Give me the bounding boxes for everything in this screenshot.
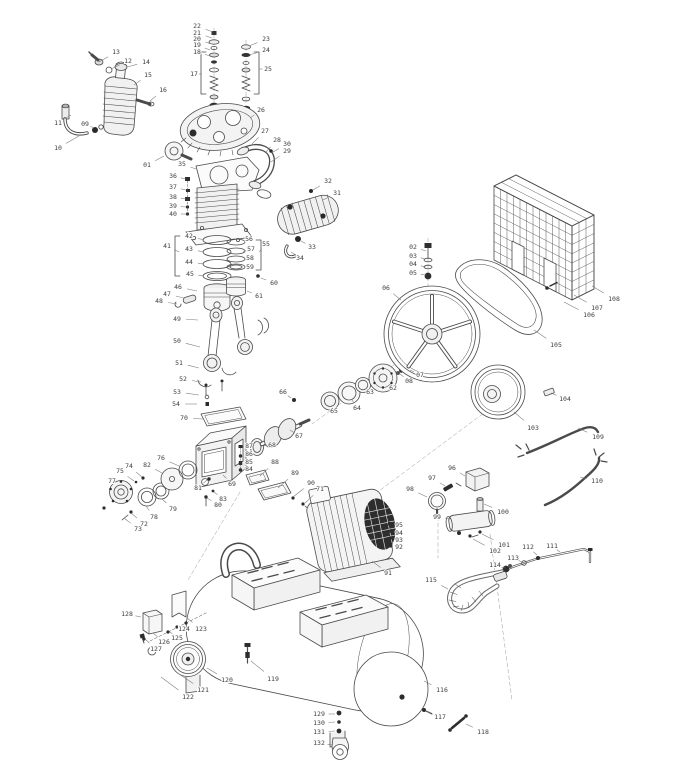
grid-screw	[545, 286, 549, 290]
bracket-17	[201, 52, 206, 94]
exploded-parts-diagram: 0102030405060708091011121314151617181920…	[0, 0, 686, 768]
part-label-39: 39	[169, 202, 177, 210]
bearings-retainers	[321, 364, 410, 410]
part-label-67: 67	[295, 432, 303, 440]
part-label-53: 53	[173, 388, 181, 396]
part-label-55: 55	[262, 240, 270, 248]
part-label-26: 26	[257, 106, 265, 114]
part-label-57: 57	[247, 245, 255, 253]
part-label-108: 108	[608, 295, 620, 303]
bracket-25	[254, 52, 259, 94]
part-label-94: 94	[395, 529, 403, 537]
part-label-82: 82	[143, 461, 151, 469]
part-label-103: 103	[527, 424, 539, 432]
part-label-92: 92	[395, 543, 403, 551]
part-label-32: 32	[324, 177, 332, 185]
drain-plug	[422, 708, 426, 712]
part-label-68: 68	[268, 441, 276, 449]
part-label-70: 70	[180, 414, 188, 422]
part-label-64: 64	[353, 404, 361, 412]
part-label-97: 97	[428, 474, 436, 482]
part-label-119: 119	[267, 675, 279, 683]
part-label-107: 107	[591, 304, 603, 312]
bolt-32	[309, 189, 313, 193]
leader-line-96	[460, 473, 465, 476]
part-label-05: 05	[409, 269, 417, 277]
leader-line-52	[192, 381, 201, 383]
part-label-105: 105	[550, 341, 562, 349]
leader-line-101	[482, 534, 493, 540]
part-label-88: 88	[271, 458, 279, 466]
part-label-09: 09	[81, 120, 89, 128]
leader-line-80	[207, 498, 211, 501]
part-label-73: 73	[134, 525, 142, 533]
pistons	[175, 274, 260, 311]
leader-line-72	[131, 513, 137, 518]
part-label-106: 106	[583, 311, 595, 319]
part-label-83: 83	[219, 495, 227, 503]
part-label-75: 75	[116, 467, 124, 475]
part-label-65: 65	[330, 407, 338, 415]
leader-line-27	[252, 138, 259, 145]
diagram-canvas: 0102030405060708091011121314151617181920…	[0, 0, 686, 768]
part-label-78: 78	[150, 513, 158, 521]
leader-line-98	[418, 493, 427, 497]
part-label-52: 52	[179, 375, 187, 383]
part-label-22: 22	[193, 22, 201, 30]
nut-33	[295, 236, 301, 242]
part-label-50: 50	[173, 337, 181, 345]
part-label-49: 49	[173, 315, 181, 323]
part-label-11: 11	[54, 119, 62, 127]
part-label-38: 38	[169, 193, 177, 201]
woodruff-key	[292, 398, 296, 402]
leader-line-90	[293, 489, 304, 497]
leader-line-46	[187, 289, 197, 291]
part-label-95: 95	[395, 521, 403, 529]
leader-line-60	[261, 278, 266, 280]
part-label-35: 35	[178, 160, 186, 168]
bolt-60	[256, 274, 260, 278]
leader-line-115	[441, 585, 448, 589]
bracket-41	[175, 236, 180, 276]
leader-line-50	[186, 343, 200, 347]
part-label-07: 07	[416, 371, 424, 379]
part-label-127: 127	[150, 645, 162, 653]
leader-line-23	[249, 43, 258, 47]
leader-line-30	[273, 149, 279, 152]
part-label-23: 23	[262, 35, 270, 43]
part-label-40: 40	[169, 210, 177, 218]
part-label-27: 27	[261, 127, 269, 135]
leader-line-61	[247, 291, 252, 293]
part-label-81: 81	[194, 484, 202, 492]
crankcase	[196, 426, 246, 488]
part-label-118: 118	[477, 728, 489, 736]
part-label-122: 122	[182, 693, 194, 701]
leader-line-100	[484, 504, 492, 507]
part-label-74: 74	[125, 462, 133, 470]
part-label-18: 18	[193, 48, 201, 56]
leader-line-76	[169, 462, 179, 466]
leader-line-66	[288, 396, 291, 398]
leader-line-06	[393, 294, 401, 300]
leader-line-83	[214, 492, 218, 495]
part-label-46: 46	[174, 283, 182, 291]
part-label-124: 124	[178, 625, 190, 633]
part-label-100: 100	[497, 508, 509, 516]
part-label-121: 121	[197, 686, 209, 694]
leader-line-105	[534, 330, 546, 338]
part-label-76: 76	[157, 454, 165, 462]
leader-line-78	[146, 506, 149, 510]
leader-line-73	[124, 518, 131, 523]
part-label-37: 37	[169, 183, 177, 191]
part-label-117: 117	[434, 713, 446, 721]
leader-line-104	[551, 393, 557, 395]
part-label-30: 30	[283, 140, 291, 148]
part-label-51: 51	[175, 359, 183, 367]
leader-line-19	[205, 48, 210, 50]
fitting-nut	[106, 67, 112, 73]
cooling-grid-panel	[494, 175, 594, 300]
part-label-120: 120	[221, 676, 233, 684]
part-label-44: 44	[185, 258, 193, 266]
part-label-03: 03	[409, 252, 417, 260]
part-label-47: 47	[163, 290, 171, 298]
flex-hose	[449, 571, 508, 611]
leader-line-102	[473, 539, 485, 545]
leader-line-47	[176, 296, 184, 298]
part-label-90: 90	[307, 479, 315, 487]
part-label-125: 125	[171, 634, 183, 642]
leader-line-74	[136, 472, 142, 477]
leader-line-08	[400, 374, 404, 377]
leader-line-70	[193, 419, 203, 420]
part-label-111: 111	[546, 542, 558, 550]
part-label-115: 115	[425, 576, 437, 584]
leader-line-01	[155, 156, 164, 161]
leader-line-10	[66, 136, 79, 143]
leader-line-35	[190, 167, 196, 169]
part-label-66: 66	[279, 388, 287, 396]
part-label-29: 29	[283, 147, 291, 155]
leader-line-97	[440, 483, 445, 486]
part-label-06: 06	[382, 284, 390, 292]
part-label-21: 21	[193, 29, 201, 37]
base-gasket	[201, 407, 246, 426]
leader-line-75	[128, 476, 135, 481]
part-label-86: 86	[245, 450, 253, 458]
part-label-69: 69	[228, 480, 236, 488]
part-label-56: 56	[245, 235, 253, 243]
leader-line-127	[145, 639, 149, 643]
leader-line-126	[153, 633, 157, 637]
bracket-55	[256, 240, 261, 270]
part-label-31: 31	[333, 189, 341, 197]
leader-line-09	[90, 126, 94, 128]
part-label-130: 130	[313, 719, 325, 727]
leader-line-16	[150, 96, 156, 101]
part-label-08: 08	[405, 377, 413, 385]
part-label-123: 123	[195, 625, 207, 633]
leader-line-82	[155, 469, 162, 473]
part-label-102: 102	[489, 547, 501, 555]
leader-line-49	[186, 319, 198, 320]
part-label-43: 43	[185, 245, 193, 253]
leader-line-106	[564, 302, 579, 310]
part-label-63: 63	[366, 388, 374, 396]
part-label-13: 13	[112, 48, 120, 56]
part-label-10: 10	[54, 144, 62, 152]
leader-line-22	[206, 29, 213, 32]
leader-line-112	[533, 552, 537, 555]
part-label-79: 79	[169, 505, 177, 513]
part-label-71: 71	[316, 485, 324, 493]
part-label-41: 41	[163, 242, 171, 250]
part-label-113: 113	[507, 554, 519, 562]
part-label-61: 61	[255, 292, 263, 300]
part-label-77: 77	[108, 477, 116, 485]
part-label-34: 34	[296, 254, 304, 262]
part-label-112: 112	[522, 543, 534, 551]
oil-cooler-assembly	[62, 52, 154, 135]
part-label-59: 59	[246, 263, 254, 271]
leader-line-33	[301, 241, 305, 243]
part-label-62: 62	[389, 384, 397, 392]
part-label-25: 25	[264, 65, 272, 73]
leader-line-118	[466, 724, 473, 727]
leader-line-21	[206, 36, 212, 38]
leader-line-128	[135, 616, 141, 617]
leader-line-51	[188, 365, 199, 368]
part-label-54: 54	[172, 400, 180, 408]
part-label-48: 48	[155, 297, 163, 305]
part-label-96: 96	[448, 464, 456, 472]
part-label-24: 24	[262, 46, 270, 54]
leader-line-113	[518, 560, 522, 562]
leader-line-02	[421, 249, 426, 251]
crankshaft	[251, 398, 310, 456]
part-label-15: 15	[144, 71, 152, 79]
part-label-45: 45	[186, 270, 194, 278]
tank-end-dome	[354, 652, 428, 726]
leader-line-79	[162, 499, 166, 503]
part-label-17: 17	[190, 70, 198, 78]
leader-line-103	[514, 412, 524, 420]
part-label-110: 110	[591, 477, 603, 485]
part-label-33: 33	[308, 243, 316, 251]
part-label-128: 128	[121, 610, 133, 618]
leader-line-24	[249, 53, 257, 55]
fitting-118	[452, 718, 464, 728]
part-label-132: 132	[313, 739, 325, 747]
part-label-131: 131	[313, 728, 325, 736]
leader-line-122	[161, 677, 179, 690]
part-label-42: 42	[185, 232, 193, 240]
part-label-85: 85	[245, 458, 253, 466]
part-label-116: 116	[436, 686, 448, 694]
part-label-109: 109	[592, 433, 604, 441]
leader-line-37	[181, 189, 186, 190]
part-label-14: 14	[142, 58, 150, 66]
leader-line-32	[313, 186, 320, 190]
part-label-16: 16	[159, 86, 167, 94]
part-label-04: 04	[409, 260, 417, 268]
part-label-58: 58	[246, 254, 254, 262]
part-label-114: 114	[489, 561, 501, 569]
flywheel	[384, 243, 480, 382]
part-label-93: 93	[395, 536, 403, 544]
part-label-104: 104	[559, 395, 571, 403]
leader-line-53	[186, 393, 199, 395]
part-label-91: 91	[384, 569, 392, 577]
mount-bracket	[172, 591, 186, 617]
part-label-02: 02	[409, 243, 417, 251]
pressure-switch-assembly	[429, 468, 496, 538]
part-label-36: 36	[169, 172, 177, 180]
part-label-28: 28	[273, 136, 281, 144]
part-label-98: 98	[406, 485, 414, 493]
part-label-84: 84	[245, 465, 253, 473]
part-label-12: 12	[124, 57, 132, 65]
part-label-89: 89	[291, 469, 299, 477]
part-label-01: 01	[143, 161, 151, 169]
part-label-60: 60	[270, 279, 278, 287]
part-label-99: 99	[433, 513, 441, 521]
air-filter	[165, 142, 191, 160]
motor-pulley	[471, 365, 555, 419]
part-label-129: 129	[313, 710, 325, 718]
part-label-87: 87	[245, 442, 253, 450]
breather-box	[143, 610, 162, 634]
connecting-rods	[198, 297, 269, 407]
leader-line-34	[291, 252, 295, 254]
